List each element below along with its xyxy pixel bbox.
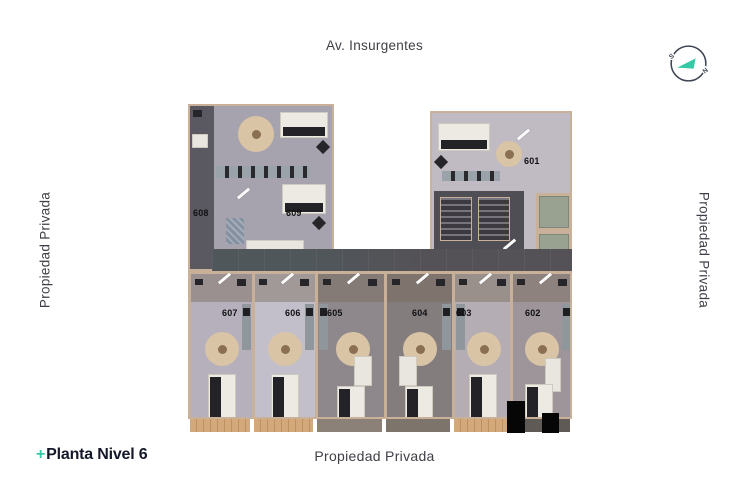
property-label-left: Propiedad Privada	[38, 192, 53, 308]
unit-606	[252, 271, 315, 419]
chair	[316, 140, 330, 154]
compass-icon: S N	[664, 39, 713, 88]
unit-label-601: 601	[524, 156, 540, 166]
unit-label-602: 602	[525, 308, 541, 318]
hallway-608	[190, 106, 214, 269]
bed-601	[438, 123, 490, 151]
door-601	[517, 129, 530, 141]
kitchenette	[442, 304, 451, 350]
compass-needle-icon	[677, 58, 695, 68]
logo: +Planta Nivel 6	[36, 446, 147, 464]
bath-fixture	[392, 279, 400, 285]
kitchenette	[562, 304, 571, 350]
rug	[268, 332, 302, 366]
kitchen-601	[442, 171, 500, 181]
bath-fixture	[300, 279, 309, 286]
bed	[405, 386, 433, 422]
rug	[467, 332, 501, 366]
bath-fixture	[459, 279, 467, 285]
block-upper-right	[430, 111, 572, 271]
wardrobe	[354, 356, 372, 386]
floor-plan: 601 602 603 604 605 606 607 608 609	[188, 104, 572, 434]
chair	[434, 155, 448, 169]
cabinet	[192, 134, 208, 148]
unit-603	[452, 271, 510, 419]
bath-fixture	[193, 110, 202, 117]
balcony-606	[254, 419, 313, 432]
logo-title: Planta Nivel 6	[46, 446, 147, 463]
kitchen-608	[216, 166, 310, 178]
unit-label-605: 605	[327, 308, 343, 318]
block-upper-left	[188, 104, 334, 271]
page: Av. Insurgentes Propiedad Privada Propie…	[0, 0, 749, 500]
unit-602	[510, 271, 572, 419]
unit-604	[384, 271, 452, 419]
bath-fixture	[436, 279, 445, 286]
unit-label-604: 604	[412, 308, 428, 318]
bed	[208, 374, 236, 420]
stair-flight	[478, 197, 510, 241]
unit-605	[315, 271, 384, 419]
bed	[271, 374, 299, 420]
street-label-top: Av. Insurgentes	[0, 38, 749, 53]
door	[237, 188, 250, 200]
bath-fixture	[195, 279, 203, 285]
balcony-607	[190, 419, 250, 432]
balcony-605	[317, 419, 382, 432]
unit-label-607: 607	[222, 308, 238, 318]
balcony-604	[386, 419, 450, 432]
rug	[205, 332, 239, 366]
unit-label-609: 609	[286, 208, 302, 218]
bath-fixture	[368, 279, 377, 286]
bath-fixture	[259, 279, 267, 285]
unit-label-603: 603	[456, 308, 472, 318]
wardrobe	[399, 356, 417, 386]
kitchenette	[305, 304, 314, 350]
unit-607	[188, 271, 252, 419]
shaft-void	[507, 401, 525, 433]
bath-fixture	[323, 279, 331, 285]
dining-rug-601	[496, 141, 522, 167]
elevator-cabin	[539, 196, 569, 228]
bath-fixture	[517, 279, 525, 285]
rug-608	[238, 116, 274, 152]
bath-fixture	[558, 279, 567, 286]
stair-flight	[440, 197, 472, 241]
shaft-void	[542, 413, 559, 433]
bath-fixture	[497, 279, 506, 286]
balcony-603	[454, 419, 508, 432]
kitchenette	[242, 304, 251, 350]
logo-plus-icon: +	[36, 446, 45, 463]
corridor	[212, 249, 572, 271]
bed-608	[280, 112, 328, 138]
bath-fixture	[237, 279, 246, 286]
unit-label-608: 608	[193, 208, 209, 218]
bed	[337, 386, 365, 422]
chair	[312, 216, 326, 230]
unit-label-606: 606	[285, 308, 301, 318]
bed	[469, 374, 497, 420]
property-label-right: Propiedad Privada	[697, 192, 712, 308]
shower-609	[226, 218, 244, 244]
